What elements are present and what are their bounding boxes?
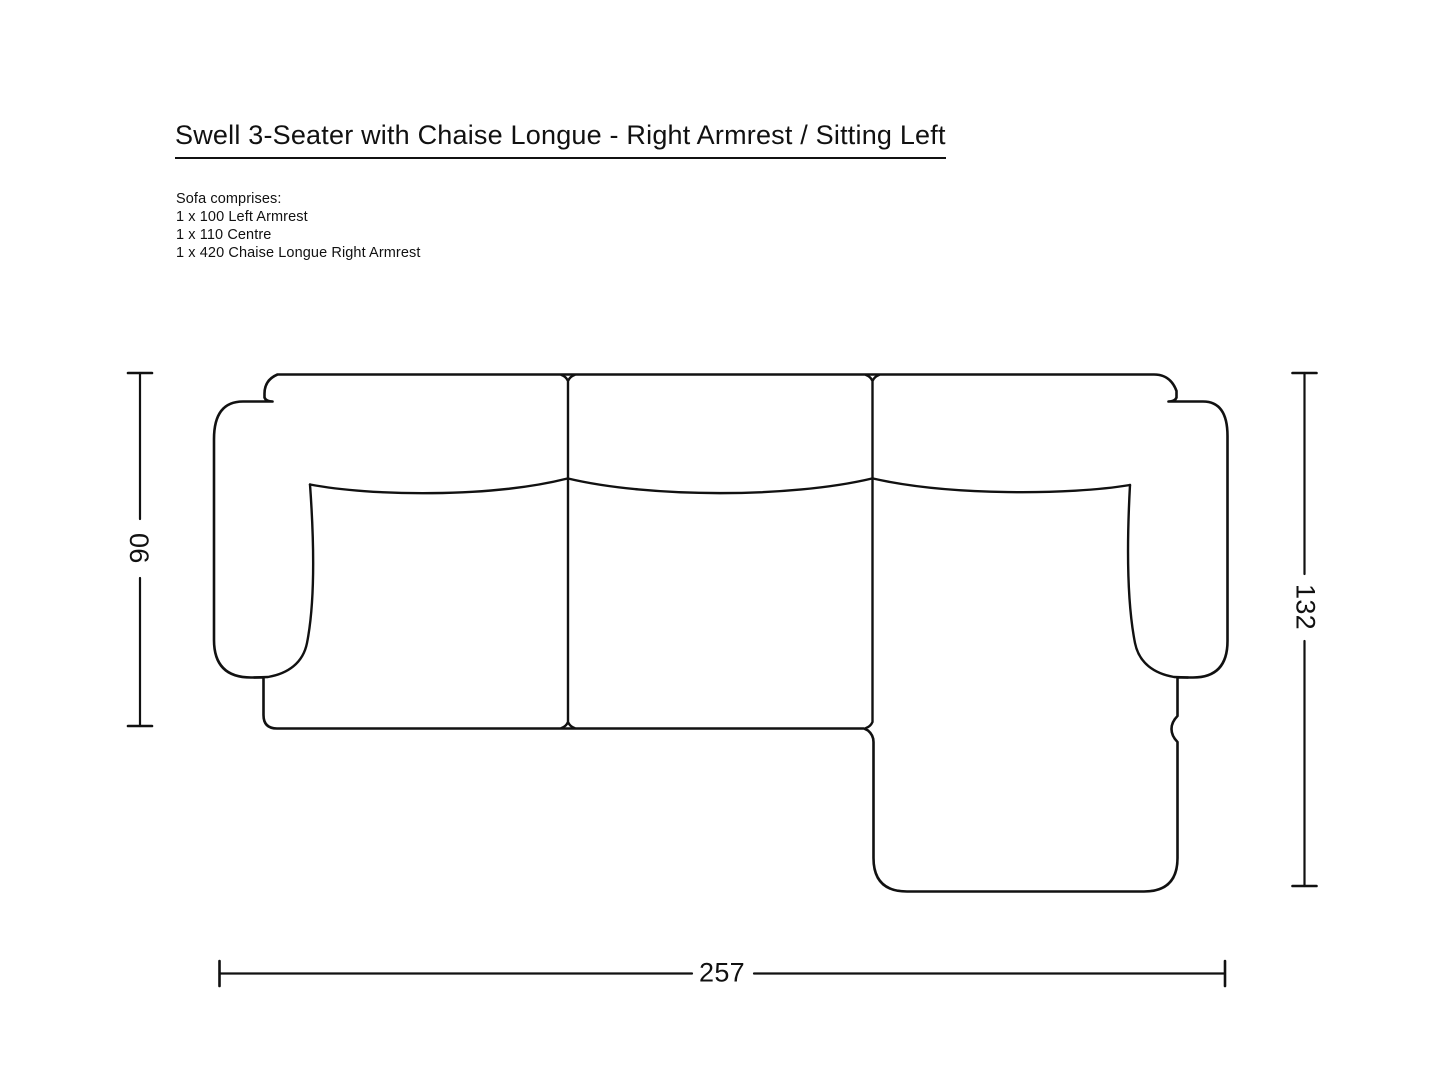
- product-dimension-sheet: Swell 3-Seater with Chaise Longue - Righ…: [0, 0, 1445, 1087]
- sofa-plan-drawing: [0, 0, 1445, 1087]
- back-cushion-curve-right: [873, 479, 1130, 493]
- dimension-value-depth-left: 90: [125, 529, 156, 568]
- dimension-value-width: 257: [695, 958, 749, 989]
- seat-cushion-edge-left: [254, 485, 313, 678]
- sofa-outline: [214, 375, 1228, 892]
- back-cushion-curve-centre: [568, 479, 872, 494]
- back-cushion-curve-left: [310, 479, 568, 494]
- seat-seam-right: [866, 375, 879, 728]
- seat-seam-left: [562, 375, 575, 728]
- dimension-value-depth-right: 132: [1290, 580, 1321, 634]
- seat-cushion-edge-right: [1128, 485, 1188, 678]
